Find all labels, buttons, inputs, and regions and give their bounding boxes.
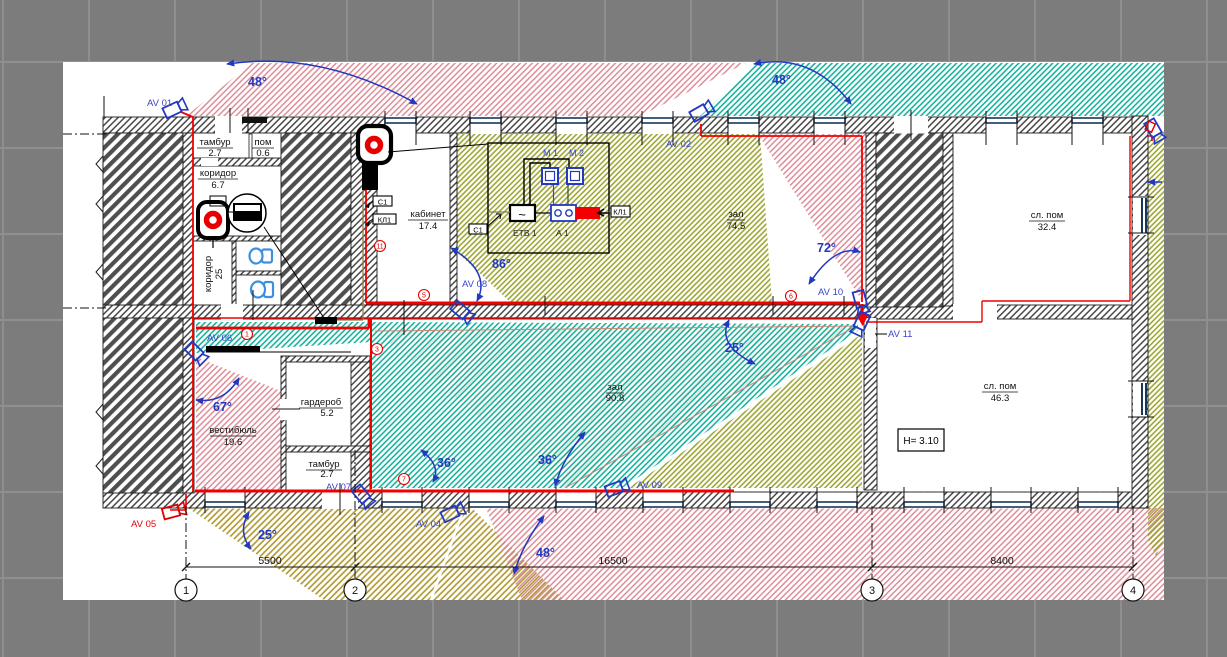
svg-text:сл. пом: сл. пом <box>984 381 1017 392</box>
svg-text:32.4: 32.4 <box>1038 222 1057 233</box>
svg-text:AV 10: AV 10 <box>818 287 843 298</box>
svg-text:А 1: А 1 <box>556 228 569 238</box>
svg-text:зал: зал <box>728 209 743 220</box>
svg-text:3: 3 <box>375 347 379 354</box>
svg-text:коридор: коридор <box>200 168 236 179</box>
svg-text:86°: 86° <box>492 257 511 271</box>
svg-text:AV 01: AV 01 <box>147 98 172 109</box>
svg-text:С1: С1 <box>378 198 388 207</box>
svg-text:8400: 8400 <box>990 555 1014 567</box>
svg-text:74.5: 74.5 <box>727 221 746 232</box>
svg-text:AV 09: AV 09 <box>637 480 662 491</box>
svg-text:кабинет: кабинет <box>411 209 447 220</box>
svg-text:коридор: коридор <box>203 256 214 292</box>
svg-text:90.8: 90.8 <box>606 393 625 404</box>
svg-text:вестибюль: вестибюль <box>209 425 257 436</box>
svg-text:2.7: 2.7 <box>320 469 333 480</box>
svg-text:36°: 36° <box>437 456 456 470</box>
svg-text:7: 7 <box>402 477 406 484</box>
svg-text:AV 04: AV 04 <box>416 519 441 530</box>
svg-text:2.7: 2.7 <box>208 148 221 159</box>
svg-text:46.3: 46.3 <box>991 393 1010 404</box>
svg-text:зал: зал <box>607 382 622 393</box>
svg-text:AV 05: AV 05 <box>131 519 156 530</box>
svg-text:16500: 16500 <box>598 555 627 567</box>
svg-text:1: 1 <box>183 585 189 597</box>
svg-text:5.2: 5.2 <box>320 408 333 419</box>
svg-text:сл. пом: сл. пом <box>1031 210 1064 221</box>
svg-text:H= 3.10: H= 3.10 <box>903 436 939 447</box>
svg-text:25°: 25° <box>258 528 277 542</box>
svg-text:тамбур: тамбур <box>199 137 230 148</box>
svg-text:48°: 48° <box>772 73 791 87</box>
svg-text:3: 3 <box>869 585 875 597</box>
svg-text:17.4: 17.4 <box>419 221 438 232</box>
svg-text:0.6: 0.6 <box>256 148 269 159</box>
svg-text:67°: 67° <box>213 400 232 414</box>
svg-text:11: 11 <box>376 244 383 251</box>
svg-text:4: 4 <box>1130 585 1136 597</box>
svg-text:5: 5 <box>422 293 426 300</box>
svg-text:гардероб: гардероб <box>301 397 342 408</box>
svg-text:48°: 48° <box>248 75 267 89</box>
svg-text:~: ~ <box>518 207 526 222</box>
svg-text:AV 08: AV 08 <box>462 279 487 290</box>
svg-text:25: 25 <box>214 269 225 280</box>
svg-text:КЛ1: КЛ1 <box>613 208 626 217</box>
svg-text:2: 2 <box>352 585 358 597</box>
svg-text:19.6: 19.6 <box>224 437 243 448</box>
svg-text:С1: С1 <box>473 226 483 235</box>
svg-text:72°: 72° <box>817 241 836 255</box>
svg-text:1: 1 <box>245 332 249 339</box>
svg-text:AV 06: AV 06 <box>207 333 232 344</box>
svg-text:25°: 25° <box>725 341 744 355</box>
svg-text:пом: пом <box>255 137 272 148</box>
svg-text:AV 07: AV 07 <box>326 482 351 493</box>
svg-text:6.7: 6.7 <box>211 180 224 191</box>
svg-text:5500: 5500 <box>258 555 282 567</box>
svg-text:ЕТВ 1: ЕТВ 1 <box>513 228 537 238</box>
svg-text:КЛ1: КЛ1 <box>378 216 391 225</box>
svg-text:36°: 36° <box>538 453 557 467</box>
svg-text:М 1: М 1 <box>543 148 558 158</box>
svg-text:AV 02: AV 02 <box>666 139 691 150</box>
svg-text:М 2: М 2 <box>569 148 584 158</box>
svg-text:AV 11: AV 11 <box>888 329 912 340</box>
svg-text:6: 6 <box>789 294 793 301</box>
svg-text:48°: 48° <box>536 546 555 560</box>
